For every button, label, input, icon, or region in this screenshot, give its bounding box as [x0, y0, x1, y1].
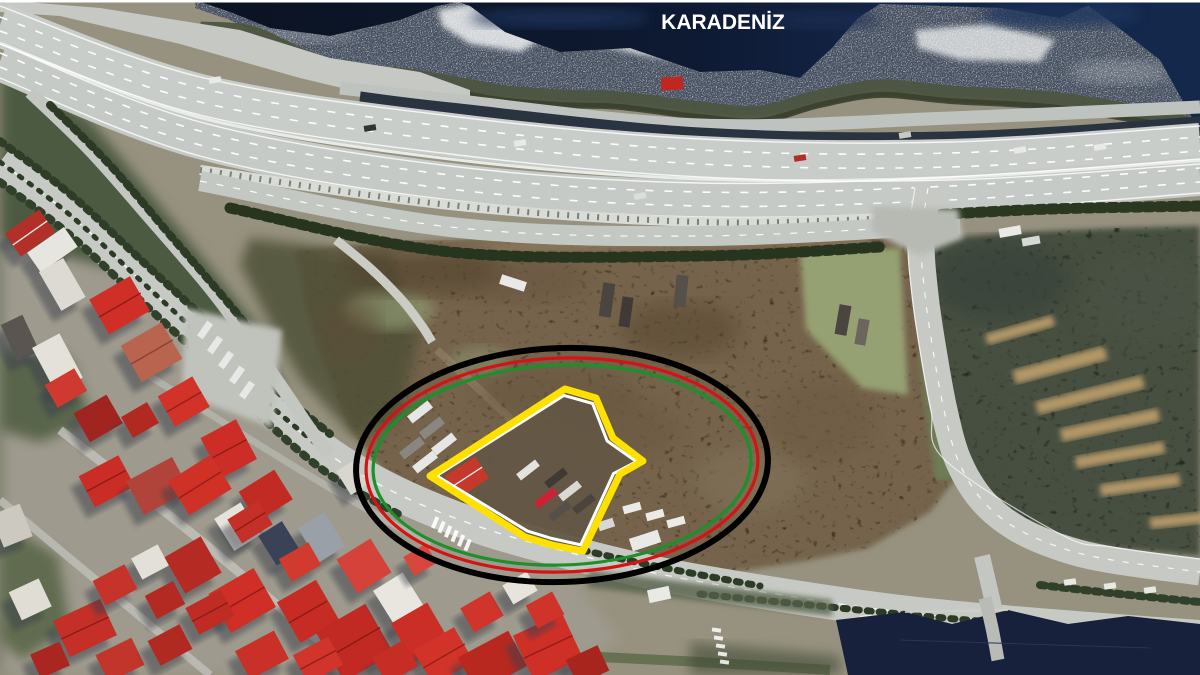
- svg-text:KARADENİZ: KARADENİZ: [661, 11, 785, 34]
